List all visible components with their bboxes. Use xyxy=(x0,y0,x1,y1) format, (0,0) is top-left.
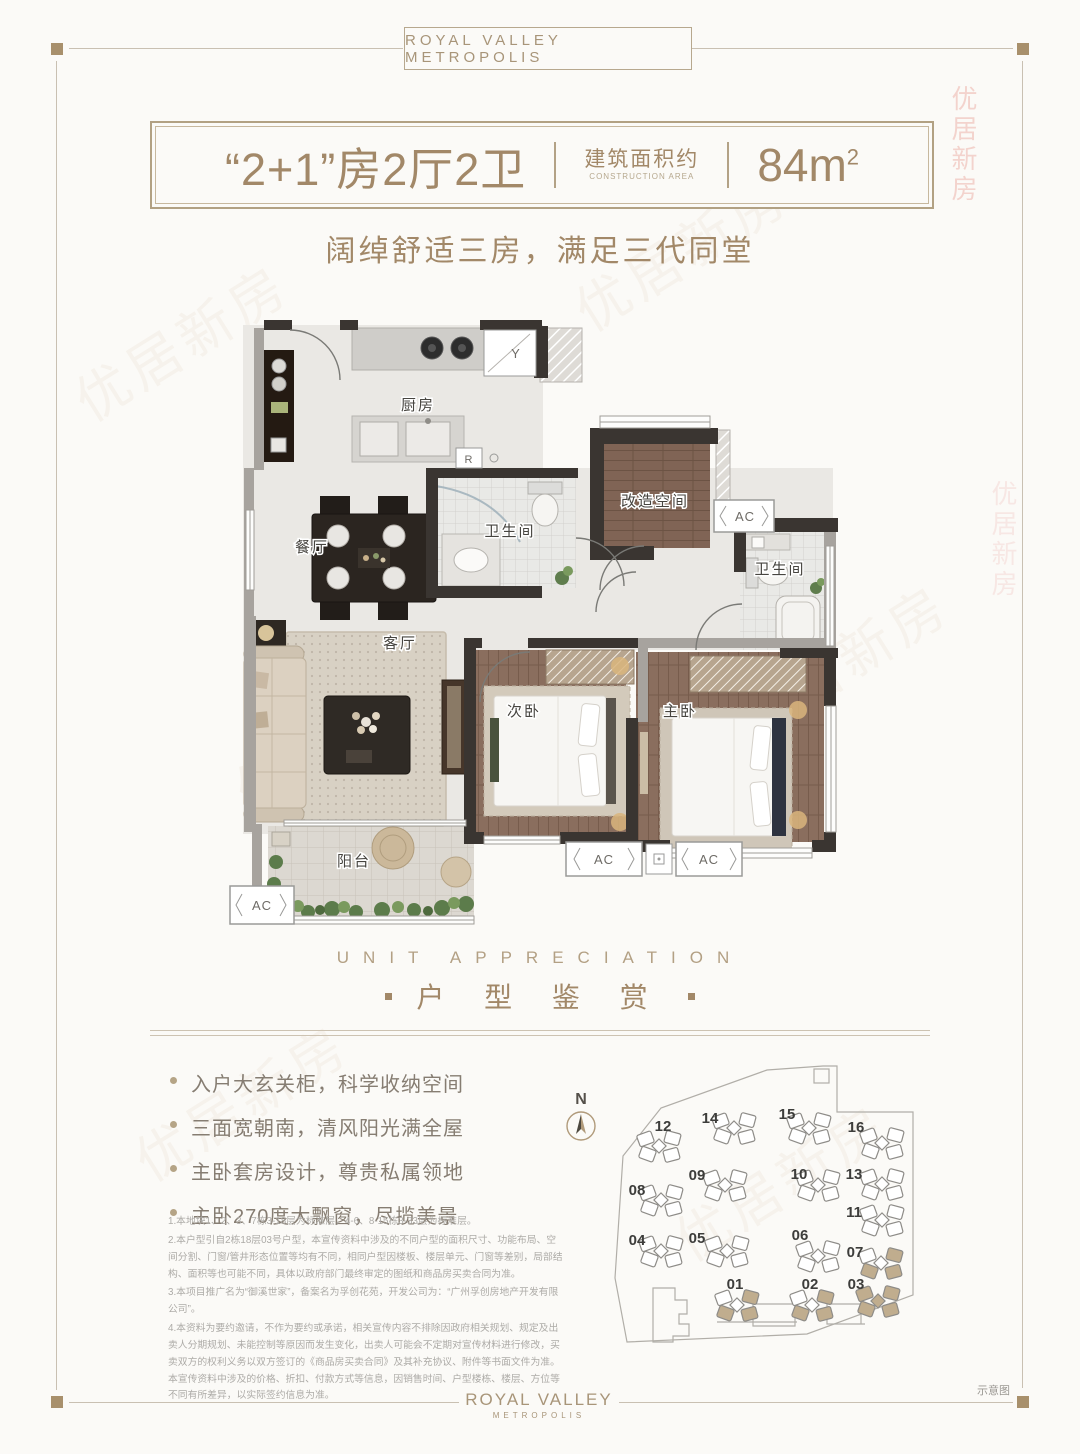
label-master: 主卧 xyxy=(663,703,697,720)
schematic-note: 示意图 xyxy=(940,1382,1010,1398)
title-divider xyxy=(727,142,729,188)
label-living: 客厅 xyxy=(383,635,417,652)
area-value: 84m2 xyxy=(757,138,859,192)
svg-text:16: 16 xyxy=(848,1119,865,1136)
bullet-dot xyxy=(170,1165,177,1172)
frame-corner xyxy=(1017,1396,1029,1408)
brand-header-label: ROYAL VALLEY METROPOLIS xyxy=(405,32,691,66)
disclaimer-line: 3.本项目推广名为“御溪世家”，备案名为孚创花苑，开发公司为：“广州孚创房地产开… xyxy=(168,1285,564,1319)
disclaimer: 1.本地块1、2、3、7栋3-18层为标准层，4-6、8-15栋3-33层为标准… xyxy=(168,1214,564,1407)
square-ornament xyxy=(688,993,695,1000)
disclaimer-line: 1.本地块1、2、3、7栋3-18层为标准层，4-6、8-15栋3-33层为标准… xyxy=(168,1214,564,1231)
area-label: 建筑面积约 CONSTRUCTION AREA xyxy=(584,148,699,182)
siteplan: N 12 14 15 16 08 09 10 13 04 05 06 11 07… xyxy=(565,1052,1015,1352)
svg-text:15: 15 xyxy=(779,1106,796,1123)
dining-set xyxy=(312,496,436,620)
feature-item: 三面宽朝南，清风阳光满全屋 xyxy=(170,1112,570,1141)
svg-text:04: 04 xyxy=(629,1232,646,1249)
frame-line xyxy=(69,48,403,49)
area-label-en: CONSTRUCTION AREA xyxy=(589,173,694,182)
ac-unit: AC xyxy=(714,500,774,532)
feature-item: 入户大玄关柜，科学收纳空间 xyxy=(170,1068,570,1097)
site-marker-square xyxy=(814,1069,829,1083)
siteplan-building: 01 xyxy=(714,1276,759,1322)
title-divider xyxy=(554,142,556,188)
subtitle: 阔绰舒适三房，满足三代同堂 xyxy=(0,226,1080,270)
title-box: “2+1”房2厅2卫 建筑面积约 CONSTRUCTION AREA 84m2 xyxy=(150,121,934,209)
lamp xyxy=(258,625,274,641)
section-title-cn: 户 型 鉴 赏 xyxy=(0,976,1080,1016)
siteplan-building: 12 xyxy=(636,1118,681,1163)
floorplan: Y R AC AC AC AC xyxy=(228,320,888,930)
footer-brand-line1: ROYAL VALLEY xyxy=(459,1390,619,1410)
disclaimer-line: 2.本户型引自2栋18层03号户型，本宣传资料中涉及的不同户型的面积尺寸、功能布… xyxy=(168,1233,564,1284)
svg-text:AC: AC xyxy=(699,852,719,867)
coffee-table xyxy=(324,696,410,774)
siteplan-building: 05 xyxy=(689,1230,750,1268)
siteplan-building: 11 xyxy=(846,1204,904,1237)
siteplan-building: 08 xyxy=(629,1182,684,1217)
siteplan-building: 13 xyxy=(846,1166,905,1201)
svg-text:01: 01 xyxy=(727,1276,744,1293)
layout-title: “2+1”房2厅2卫 xyxy=(225,133,526,198)
siteplan-building: 02 xyxy=(789,1276,834,1322)
svg-text:11: 11 xyxy=(846,1204,862,1221)
svg-text:07: 07 xyxy=(847,1244,864,1261)
living-furniture xyxy=(244,620,466,826)
ac-unit: AC xyxy=(676,842,742,876)
frame-line xyxy=(604,1402,1013,1403)
siteplan-building: 16 xyxy=(848,1119,905,1160)
bullet-dot xyxy=(170,1121,177,1128)
label-kitchen: 厨房 xyxy=(401,397,435,414)
label-balcony: 阳台 xyxy=(337,853,371,870)
frame-corner xyxy=(51,43,63,55)
feature-item: 主卧套房设计，尊贵私属领地 xyxy=(170,1156,570,1185)
area-label-cn: 建筑面积约 xyxy=(584,148,699,171)
svg-text:13: 13 xyxy=(846,1166,863,1183)
watermark-stamp: 优居新房 xyxy=(985,480,1022,600)
ac-unit: AC xyxy=(230,886,294,924)
watermark-stamp: 优居新房 xyxy=(945,85,982,205)
svg-text:AC: AC xyxy=(252,898,272,913)
svg-text:AC: AC xyxy=(594,852,614,867)
siteplan-building: 15 xyxy=(779,1106,832,1145)
master-headboard xyxy=(772,718,786,836)
poster-page: 优居新房 优居新房 优居新房 优居新房 优居新房 优居新房 优居新房 优居新房 … xyxy=(0,0,1080,1454)
siteplan-building: 06 xyxy=(792,1227,841,1273)
svg-text:10: 10 xyxy=(791,1166,808,1183)
wardrobe-master xyxy=(690,656,806,692)
siteplan-building: 09 xyxy=(689,1167,748,1202)
frame-line xyxy=(692,48,1013,49)
svg-text:05: 05 xyxy=(689,1230,706,1247)
y-label: Y xyxy=(511,346,521,361)
svg-text:08: 08 xyxy=(629,1182,646,1199)
siteplan-building: 10 xyxy=(791,1166,841,1202)
label-bath2: 卫生间 xyxy=(754,561,805,578)
svg-text:N: N xyxy=(575,1091,587,1108)
siteplan-building: 03 xyxy=(848,1276,901,1318)
double-rule xyxy=(150,1030,930,1036)
shaft-hatch xyxy=(716,430,730,500)
svg-text:12: 12 xyxy=(655,1118,672,1135)
frame-corner xyxy=(51,1396,63,1408)
bed2-bench xyxy=(490,718,499,782)
svg-text:AC: AC xyxy=(735,509,755,524)
master-bench xyxy=(640,732,648,794)
svg-text:06: 06 xyxy=(792,1227,809,1244)
label-bedroom2: 次卧 xyxy=(507,703,541,720)
north-compass: N xyxy=(567,1091,595,1140)
r-label: R xyxy=(465,454,474,466)
siteplan-building: 07 xyxy=(847,1244,904,1280)
brand-header: ROYAL VALLEY METROPOLIS xyxy=(404,27,692,70)
tv-console-panel xyxy=(447,686,461,768)
ac-unit: AC xyxy=(566,842,642,876)
label-flex: 改造空间 xyxy=(621,493,689,510)
square-ornament xyxy=(385,993,392,1000)
section-title-en: UNIT APPRECIATION xyxy=(0,948,1080,968)
svg-text:09: 09 xyxy=(689,1167,706,1184)
svg-text:03: 03 xyxy=(848,1276,865,1293)
svg-text:02: 02 xyxy=(802,1276,819,1293)
footer-brand: ROYAL VALLEY METROPOLIS xyxy=(459,1390,619,1420)
footer-brand-line2: METROPOLIS xyxy=(459,1411,619,1420)
bullet-dot xyxy=(170,1077,177,1084)
siteplan-building: 14 xyxy=(702,1110,757,1145)
irregular-building xyxy=(653,1288,689,1342)
label-dining: 餐厅 xyxy=(295,539,329,556)
frame-corner xyxy=(1017,43,1029,55)
svg-text:14: 14 xyxy=(702,1110,719,1127)
siteplan-building: 04 xyxy=(629,1232,684,1268)
label-bath1: 卫生间 xyxy=(484,523,535,540)
